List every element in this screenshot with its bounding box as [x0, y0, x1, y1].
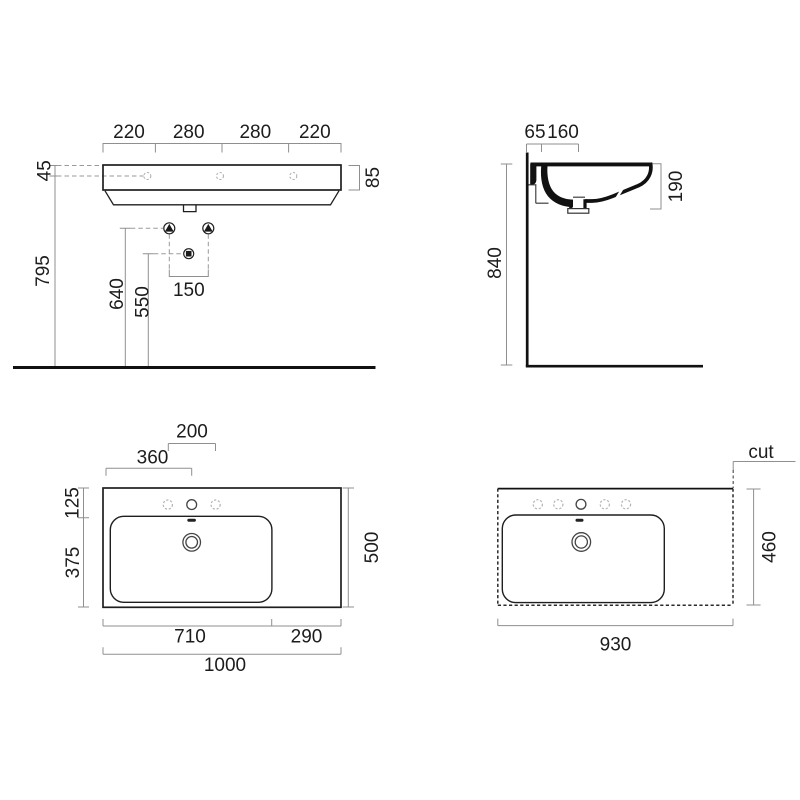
cut-width-dim-line [498, 619, 733, 626]
dim-label-550: 550 [132, 286, 153, 318]
dim-label-65: 65 [524, 122, 545, 143]
front-top-dim-bracket [103, 144, 341, 153]
front-drain-stub [184, 205, 197, 212]
drawing-canvas: 220 280 280 220 45 795 85 [0, 0, 800, 800]
front-tap-hole-center-icon [217, 173, 224, 180]
dim-label-930: 930 [600, 635, 632, 656]
dim-label-640: 640 [107, 278, 128, 310]
cut-view: cut 460 930 [498, 442, 796, 656]
front-tap-hole-left-icon [144, 173, 151, 180]
front-view: 220 280 280 220 45 795 85 [13, 122, 384, 368]
fixing-spacing-bracket [169, 270, 208, 277]
front-basin-rim-outline [103, 165, 341, 190]
plan-overflow-slot-icon [187, 519, 196, 522]
dim-label-85: 85 [363, 167, 384, 188]
dim-label-190: 190 [666, 171, 687, 203]
side-view: 65 160 840 190 [485, 122, 703, 366]
plan-tap-center-bracket [106, 468, 192, 476]
dim-label-220-right: 220 [299, 122, 331, 143]
plan-plate-outline [103, 488, 341, 607]
plan-view: 200 360 125 375 500 710 290 1000 [63, 422, 384, 677]
plan-total-width-dim-line [103, 647, 341, 654]
dim-label-375: 375 [63, 547, 84, 579]
dim-label-710: 710 [174, 627, 206, 648]
front-rim-height-bracket [349, 166, 360, 191]
plan-drain-inner-icon [186, 537, 198, 549]
dim-label-500: 500 [362, 532, 383, 564]
dim-label-840: 840 [485, 247, 506, 279]
plan-split-width-dim-line [103, 619, 341, 626]
plan-basin-outline [110, 516, 272, 602]
dim-label-280-left: 280 [173, 122, 205, 143]
side-view-section [529, 163, 651, 214]
section-back-flange [530, 164, 536, 185]
side-top-dim-bracket [527, 144, 579, 152]
dim-label-360: 360 [137, 448, 169, 469]
dim-label-160: 160 [547, 122, 579, 143]
dim-label-220-left: 220 [113, 122, 145, 143]
technical-drawing-page: 220 280 280 220 45 795 85 [0, 0, 800, 800]
cut-tap-hole-center-icon [576, 499, 586, 509]
front-basin-underside [105, 191, 339, 205]
section-left-curve [541, 166, 572, 207]
dim-label-45: 45 [35, 160, 56, 181]
plan-tap-spacing-bracket [168, 444, 215, 452]
cut-overflow-slot-icon [576, 519, 584, 522]
dim-label-290: 290 [291, 627, 323, 648]
section-drain-fitting [568, 209, 589, 214]
plan-depth-dim-line [343, 488, 354, 607]
dim-label-795: 795 [33, 255, 54, 287]
dim-label-125: 125 [63, 487, 84, 519]
cut-depth-dim-line [747, 489, 761, 605]
dim-label-280-right: 280 [239, 122, 271, 143]
dim-label-150: 150 [173, 280, 205, 301]
cut-label: cut [748, 442, 774, 463]
drain-point-square-icon [186, 251, 192, 257]
fixing-markers [131, 223, 214, 270]
plan-tap-hole-right-icon [211, 500, 220, 509]
dim-label-200: 200 [176, 422, 208, 443]
front-tap-hole-right-icon [290, 173, 297, 180]
dim-label-1000: 1000 [204, 655, 246, 676]
plan-tap-hole-center-icon [187, 500, 197, 510]
dim-label-460: 460 [760, 531, 781, 563]
plan-tap-hole-left-icon [163, 500, 172, 509]
